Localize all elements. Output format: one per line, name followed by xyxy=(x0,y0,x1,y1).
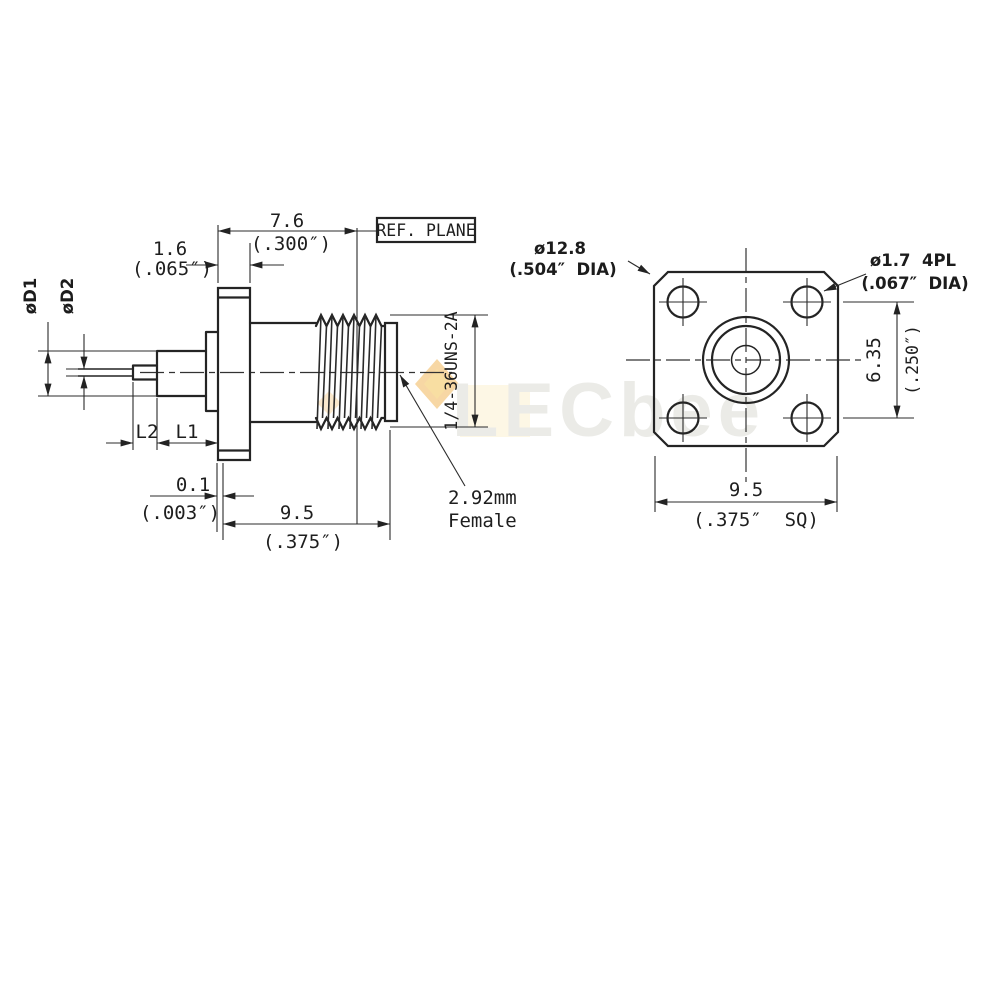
hole-dia-mm: ø1.7 4PL xyxy=(870,251,957,270)
ext-line xyxy=(218,225,250,283)
flange-dia-leader xyxy=(628,261,650,274)
rear-boss xyxy=(206,332,218,411)
technical-drawing-page: LECbee REF. PLANE 7.6 (.300″) 1.6 (.065″… xyxy=(0,0,1000,1000)
dia-d2-label: øD2 xyxy=(58,278,77,315)
thread-spec-label: 1/4-36UNS-2A xyxy=(442,311,461,430)
dielectric-cylinder-d1 xyxy=(157,351,206,396)
dim-0-1-mm: 0.1 xyxy=(176,474,210,496)
hole-pitch-in: (.250″) xyxy=(903,325,922,395)
flange-dia-in: (.504″ DIA) xyxy=(509,260,616,279)
ext-d1 xyxy=(38,322,157,396)
dim-9-5-side-mm: 9.5 xyxy=(280,502,314,524)
square-mm: 9.5 xyxy=(729,479,763,501)
dim-1-6-in: (.065″) xyxy=(132,258,212,280)
len-l2-label: L2 xyxy=(136,421,159,443)
flange-dia-mm: ø12.8 xyxy=(534,239,586,258)
dim-1-6-mm: 1.6 xyxy=(153,238,187,260)
center-pin xyxy=(78,369,133,376)
connector-drawing-svg: LECbee REF. PLANE 7.6 (.300″) 1.6 (.065″… xyxy=(0,0,1000,1000)
flange-edge xyxy=(218,288,250,460)
square-in: (.375″ SQ) xyxy=(693,509,819,531)
dim-7-6-mm: 7.6 xyxy=(270,210,304,232)
hole-dia-in: (.067″ DIA) xyxy=(861,274,968,293)
side-view: REF. PLANE 7.6 (.300″) 1.6 (.065″) øD1 ø… xyxy=(21,210,517,553)
dim-7-6-in: (.300″) xyxy=(251,233,331,255)
ext-d2 xyxy=(66,369,78,376)
connector-label-line1: 2.92mm xyxy=(448,487,517,509)
ref-plane-label: REF. PLANE xyxy=(376,221,475,240)
dim-0-1-in: (.003″) xyxy=(140,502,220,524)
dia-d1-label: øD1 xyxy=(21,278,40,315)
hole-dia-leader xyxy=(824,274,866,291)
hole-pitch-mm: 6.35 xyxy=(863,337,885,383)
thread-profile-top xyxy=(316,315,385,326)
dim-9-5-side-in: (.375″) xyxy=(263,531,343,553)
len-l1-label: L1 xyxy=(176,421,199,443)
connector-label-line2: Female xyxy=(448,510,517,532)
